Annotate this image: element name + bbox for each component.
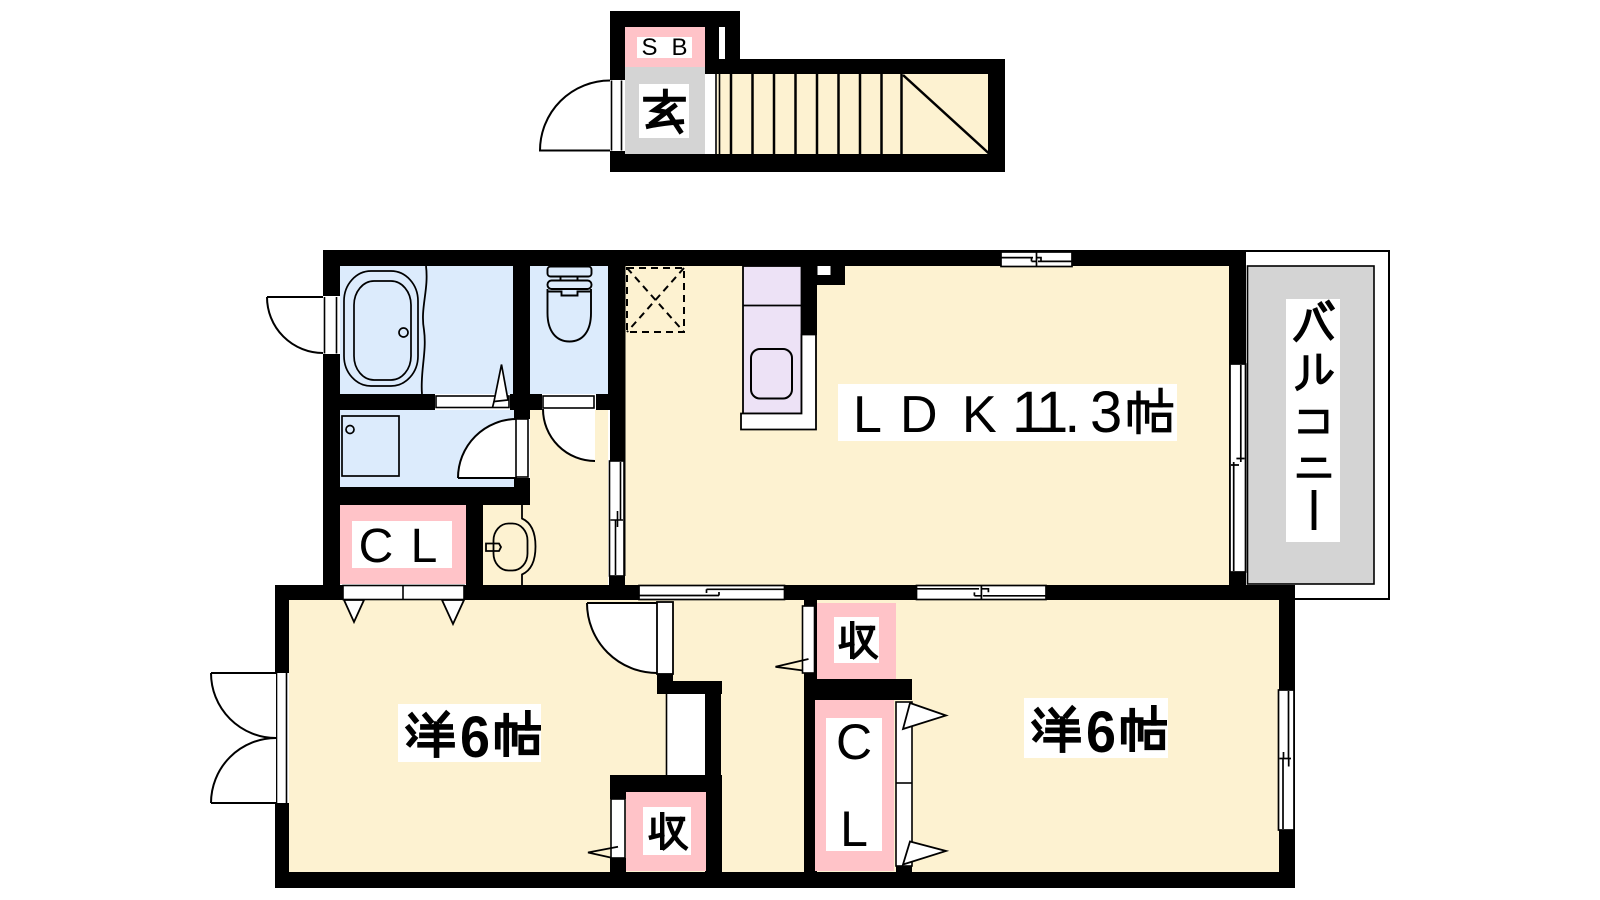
svg-text:L: L <box>853 386 882 444</box>
svg-text:6: 6 <box>460 705 490 770</box>
svg-text:6: 6 <box>1086 700 1116 765</box>
svg-text:C: C <box>359 520 394 573</box>
svg-text:3: 3 <box>1090 380 1122 445</box>
svg-text:D: D <box>900 386 938 444</box>
svg-text:L: L <box>840 801 868 857</box>
svg-text:C: C <box>836 714 872 770</box>
svg-text:K: K <box>962 386 997 444</box>
svg-text:L: L <box>411 520 438 573</box>
svg-text:11.: 11. <box>1012 380 1076 445</box>
